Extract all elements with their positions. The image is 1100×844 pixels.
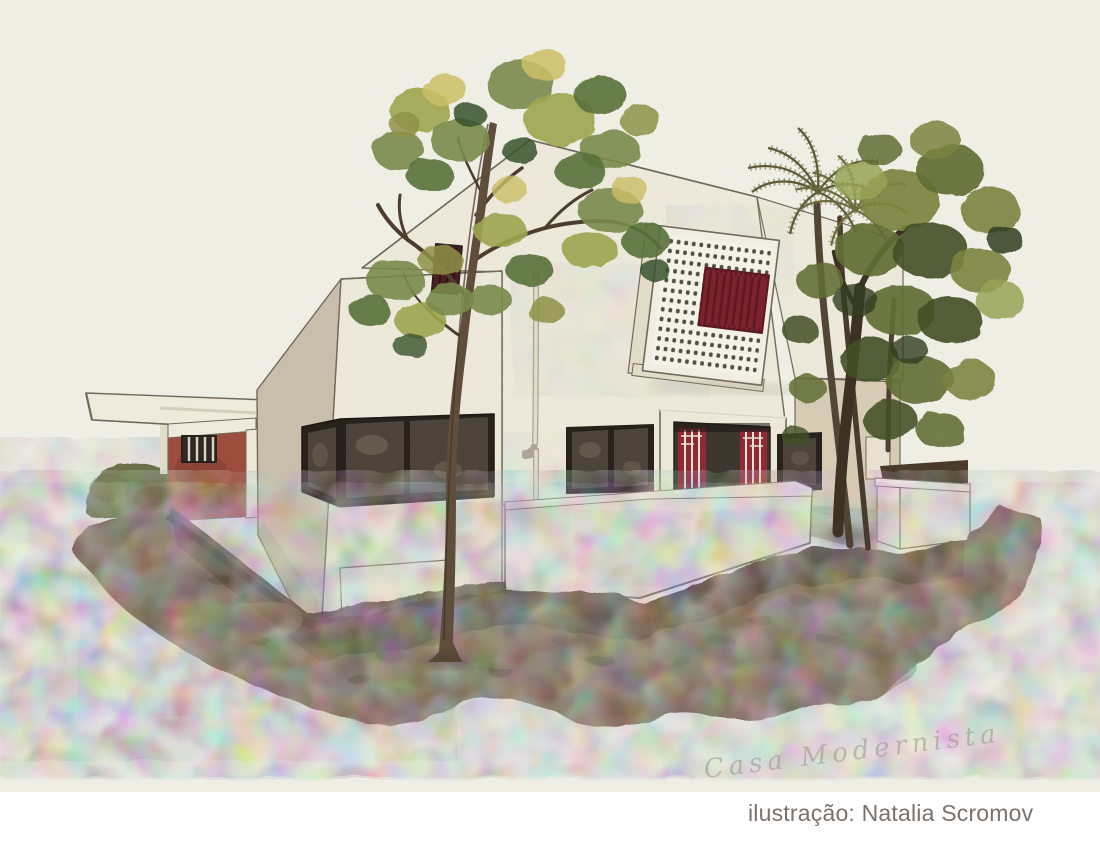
caption-text: ilustração: Natalia Scromov bbox=[748, 800, 1033, 827]
caption-strip: ilustração: Natalia Scromov bbox=[0, 792, 1100, 844]
watercolor-painting: Casa Modernista bbox=[0, 0, 1100, 844]
paper-grain bbox=[0, 0, 1100, 792]
artwork-page: Casa Modernista ilustração: Natalia Scro… bbox=[0, 0, 1100, 844]
